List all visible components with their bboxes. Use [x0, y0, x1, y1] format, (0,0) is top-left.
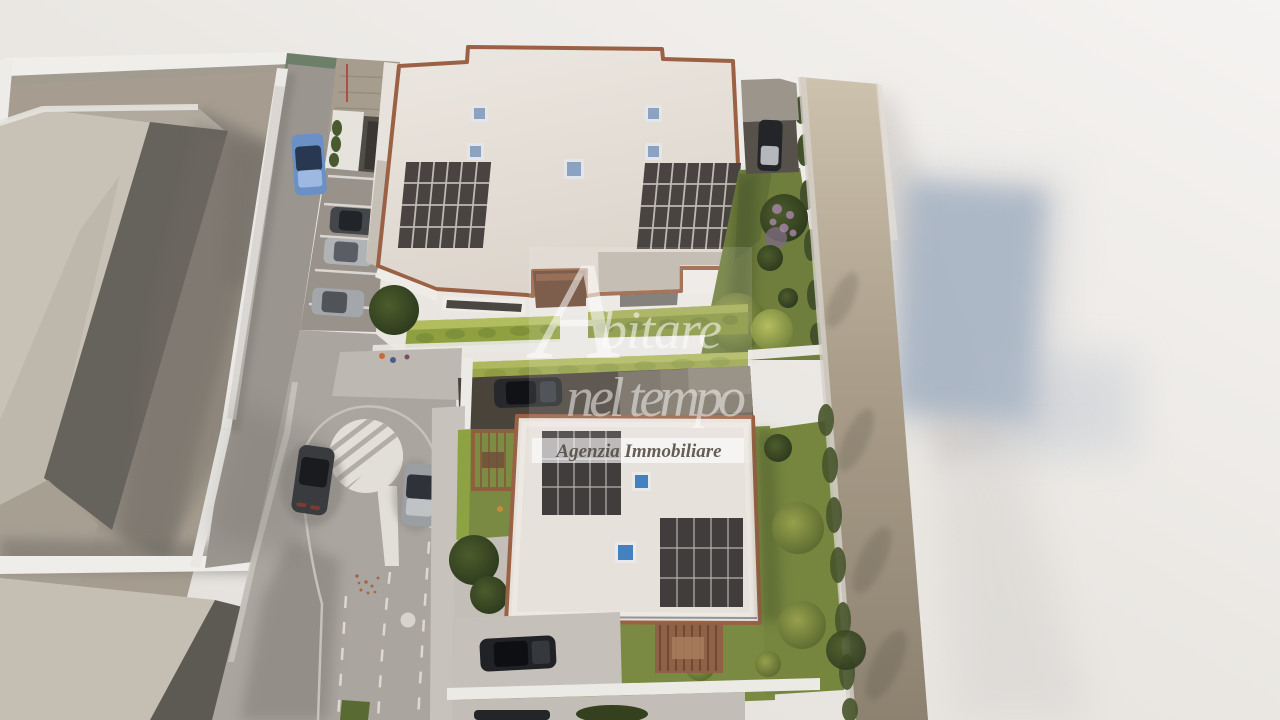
svg-text:nel tempo: nel tempo [566, 367, 746, 429]
svg-text:bitare: bitare [600, 300, 722, 360]
svg-text:Agenzia Immobiliare: Agenzia Immobiliare [555, 441, 722, 462]
